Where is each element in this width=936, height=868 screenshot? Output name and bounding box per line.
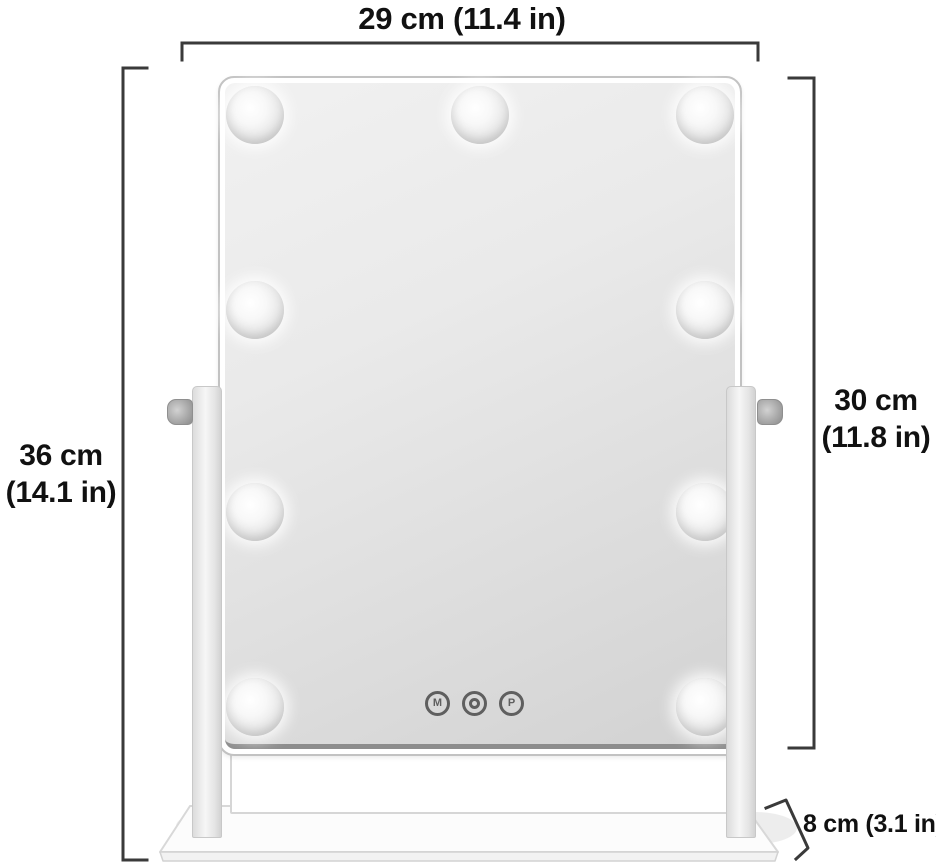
dimension-diagram: M P 29 cm (11.4 in) 36 cm (14.1 in) 30 c…	[0, 0, 936, 868]
total-height-inches: (14.1 in)	[0, 474, 122, 511]
mirror-height-label: 30 cm (11.8 in)	[816, 382, 936, 456]
dimension-lines	[0, 0, 936, 868]
dimension-line-total-height	[123, 68, 147, 860]
mirror-height-inches: (11.8 in)	[816, 419, 936, 456]
base-depth-label: 8 cm (3.1 in)	[803, 810, 936, 839]
total-height-label: 36 cm (14.1 in)	[0, 437, 122, 511]
dimension-line-width	[182, 43, 758, 60]
dimension-bracket-depth	[766, 800, 808, 859]
dimension-line-mirror-height	[789, 78, 814, 748]
width-label: 29 cm (11.4 in)	[262, 1, 662, 37]
mirror-height-value: 30 cm	[816, 382, 936, 419]
total-height-value: 36 cm	[0, 437, 122, 474]
